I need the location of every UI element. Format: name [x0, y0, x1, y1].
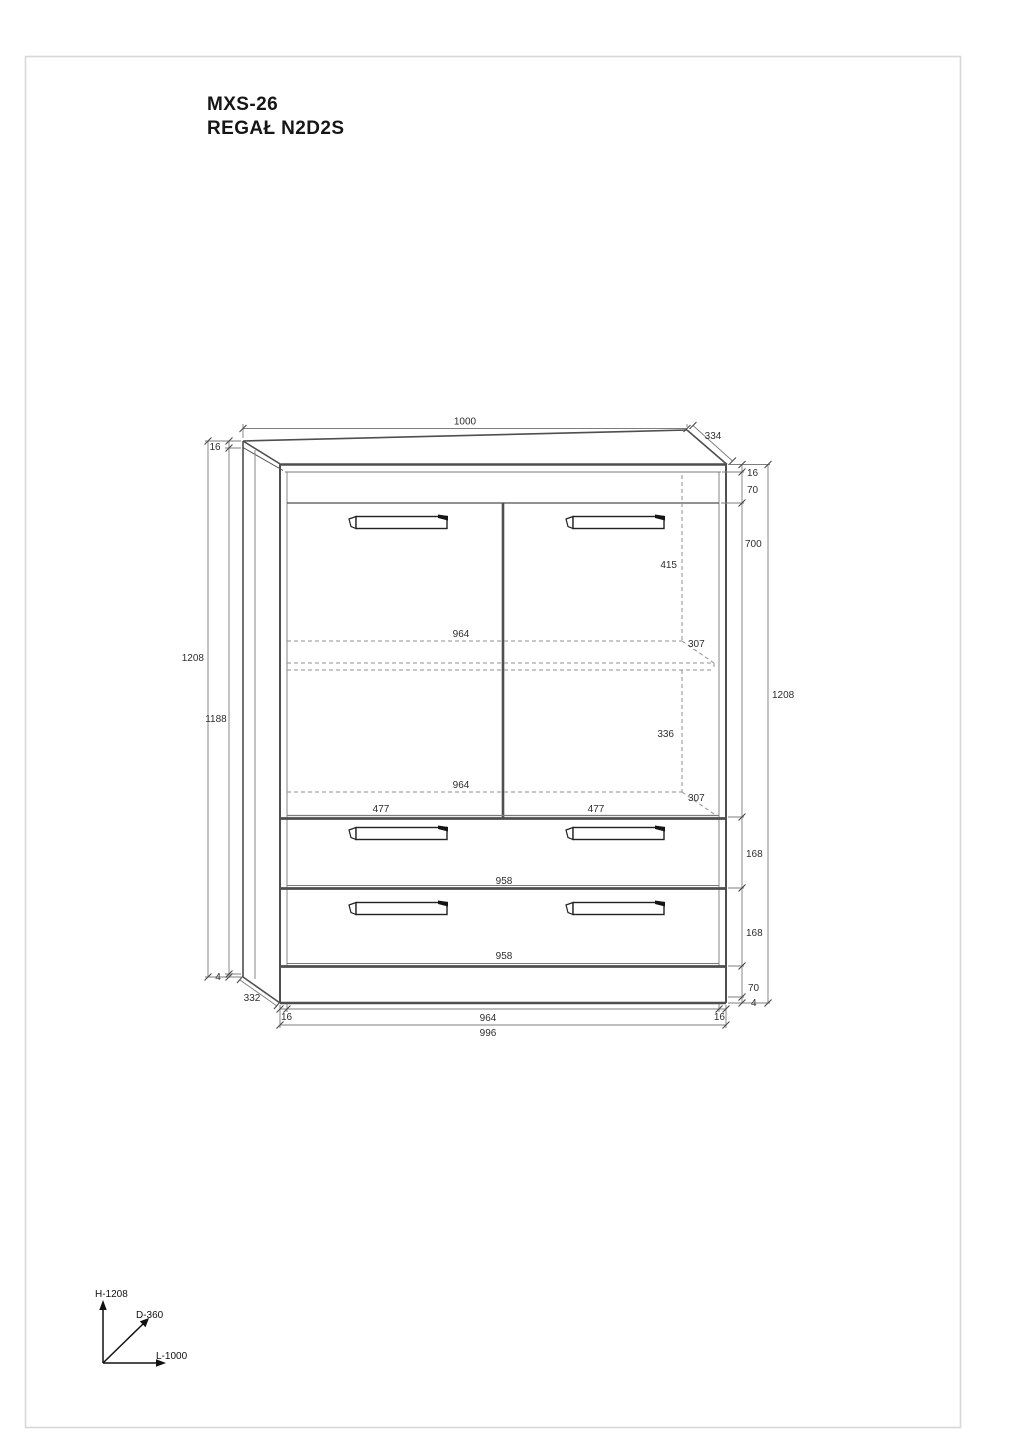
dim-label-drawer-front-1: 958	[496, 876, 513, 887]
technical-drawing-canvas: MXS-26 REGAŁ N2D2S	[0, 0, 1024, 1449]
door-handle-left	[349, 515, 448, 529]
dim-label-bottom-total: 996	[480, 1028, 497, 1039]
dim-label-right-plinth: 70	[748, 983, 760, 994]
dim-label-right-drawer2: 168	[746, 928, 763, 939]
dim-label-left-total: 1208	[182, 653, 205, 664]
dim-label-left-inner: 1188	[205, 714, 227, 725]
dim-label-door-width-left: 477	[373, 804, 390, 815]
dim-label-shelf-width-lower: 964	[453, 780, 470, 791]
dim-label-bottom-right-thickness: 16	[714, 1012, 726, 1023]
axis-label-height: H-1208	[95, 1289, 128, 1300]
dim-label-right-door: 700	[745, 539, 762, 550]
dimension-left: 1208 16 1188 4 332	[182, 438, 280, 1010]
dim-label-above-shelf: 415	[660, 560, 677, 571]
drawing-title-name: REGAŁ N2D2S	[207, 118, 344, 139]
dim-label-below-shelf: 336	[657, 729, 674, 740]
dim-label-right-bottom-gap: 4	[751, 998, 757, 1009]
dim-label-shelf-width-upper: 964	[453, 629, 470, 640]
drawing-page: MXS-26 REGAŁ N2D2S	[0, 0, 1024, 1449]
dim-label-left-top-thickness: 16	[209, 442, 221, 453]
dimension-bottom: 16 964 16 996	[277, 1004, 730, 1039]
drawer2-handle-right	[566, 901, 665, 915]
dim-label-right-total: 1208	[772, 690, 795, 701]
dim-label-door-width-right: 477	[588, 804, 605, 815]
dim-label-top-depth: 334	[705, 431, 722, 442]
handles	[349, 515, 665, 915]
page-border	[26, 57, 961, 1428]
dim-label-bottom-depth: 332	[244, 993, 261, 1004]
dim-label-bottom-inner: 964	[480, 1013, 497, 1024]
dim-label-left-bottom-gap: 4	[215, 972, 221, 983]
dimension-right: 16 70 700 168 168 70 4 1208	[721, 461, 795, 1009]
dim-label-right-drawer1: 168	[746, 849, 763, 860]
dim-label-shelf-depth-lower: 307	[688, 793, 705, 804]
drawer1-handle-right	[566, 826, 665, 840]
axis-legend: H-1208 D-360 L-1000	[95, 1289, 188, 1367]
drawer1-handle-left	[349, 826, 448, 840]
dim-label-right-top-thickness: 16	[747, 468, 759, 479]
dim-label-drawer-front-2: 958	[496, 951, 513, 962]
cabinet-top-panel	[243, 430, 727, 472]
cabinet-left-side-panel	[243, 441, 280, 1003]
dim-label-shelf-depth-upper: 307	[688, 639, 705, 650]
drawer2-handle-left	[349, 901, 448, 915]
dimension-top: 1000 334	[240, 417, 737, 465]
height-axis-arrowhead	[99, 1300, 106, 1310]
door-handle-right	[566, 515, 665, 529]
dim-label-bottom-left-thickness: 16	[281, 1012, 293, 1023]
axis-label-length: L-1000	[156, 1351, 188, 1362]
dim-label-right-top-rail: 70	[747, 485, 759, 496]
drawing-title-model: MXS-26	[207, 94, 278, 115]
axis-label-depth: D-360	[136, 1310, 164, 1321]
dim-label-top-width: 1000	[454, 417, 477, 428]
